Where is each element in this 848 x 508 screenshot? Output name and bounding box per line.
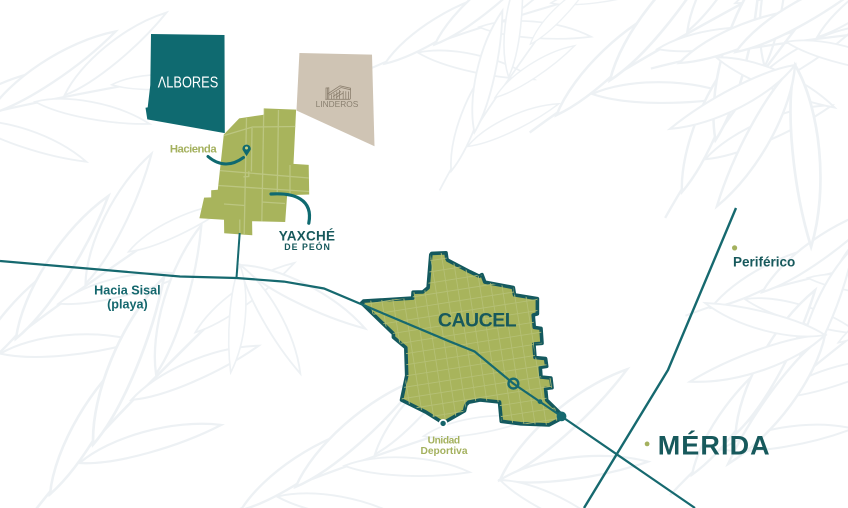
svg-text:LINDEROS: LINDEROS — [316, 100, 359, 109]
svg-text:DE PEÓN: DE PEÓN — [284, 241, 331, 252]
svg-text:(playa): (playa) — [107, 298, 148, 312]
svg-text:Hacienda: Hacienda — [170, 143, 217, 155]
svg-text:MÉRIDA: MÉRIDA — [658, 430, 771, 461]
svg-text:Periférico: Periférico — [733, 255, 795, 270]
svg-text:Hacia Sisal: Hacia Sisal — [94, 283, 161, 297]
svg-text:ΛLBORES: ΛLBORES — [158, 75, 219, 92]
svg-text:CAUCEL: CAUCEL — [438, 310, 517, 332]
svg-text:Deportiva: Deportiva — [421, 446, 468, 457]
